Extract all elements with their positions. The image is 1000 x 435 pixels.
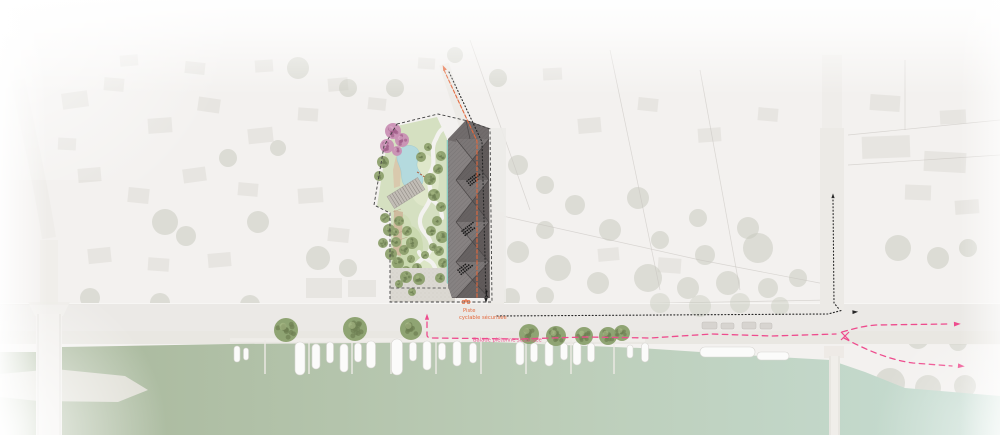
- context-tree: [959, 239, 977, 257]
- context-tree: [789, 269, 807, 287]
- shore-canopy: [730, 293, 750, 313]
- tree-texture: [435, 191, 438, 194]
- context-tree: [627, 187, 649, 209]
- tree-highlight: [393, 239, 396, 242]
- tree-highlight: [423, 253, 425, 255]
- context-building: [77, 167, 101, 183]
- tree-texture: [559, 338, 563, 342]
- context-tree: [247, 211, 269, 233]
- car: [721, 323, 734, 329]
- boat: [340, 344, 348, 372]
- tree-texture: [400, 260, 403, 263]
- boat: [573, 342, 581, 365]
- tree-texture: [530, 329, 534, 333]
- tree-highlight: [394, 148, 397, 151]
- context-tree: [536, 176, 554, 194]
- context-building: [637, 97, 658, 112]
- boat: [312, 344, 320, 369]
- tree-texture: [404, 232, 406, 234]
- tree-texture: [286, 335, 291, 340]
- context-building: [184, 61, 205, 75]
- context-tree: [219, 149, 237, 167]
- context-building: [905, 185, 932, 201]
- shore-canopy: [650, 293, 670, 313]
- context-building: [955, 199, 980, 215]
- tree-highlight: [618, 328, 623, 333]
- tree-texture: [430, 180, 433, 183]
- context-building: [940, 109, 967, 124]
- tree-texture: [399, 143, 402, 146]
- tree-highlight: [410, 290, 412, 292]
- car: [760, 323, 772, 329]
- tree-highlight: [409, 239, 413, 243]
- tree-texture: [409, 260, 411, 262]
- boat: [700, 347, 755, 357]
- tree-texture: [443, 261, 445, 263]
- context-building: [597, 247, 619, 262]
- tree-texture: [405, 248, 407, 250]
- tree-highlight: [386, 226, 390, 230]
- bridge-approach-road: [18, 80, 49, 238]
- project-site: [374, 114, 492, 302]
- context-tree: [743, 233, 773, 263]
- boat: [295, 342, 305, 375]
- context-building: [367, 97, 386, 111]
- context-tree: [927, 247, 949, 269]
- north-road: [820, 128, 844, 310]
- tree-highlight: [437, 275, 440, 278]
- context-tree: [677, 277, 699, 299]
- context-tree: [339, 259, 357, 277]
- tree-texture: [383, 148, 386, 151]
- tree-texture: [580, 338, 584, 342]
- context-building: [197, 97, 221, 114]
- tree-texture: [397, 150, 399, 152]
- context-tree: [152, 209, 178, 235]
- tree-highlight: [435, 166, 438, 169]
- boat: [244, 348, 249, 360]
- tree-highlight: [438, 153, 441, 156]
- context-building: [757, 107, 778, 122]
- tree-highlight: [579, 331, 584, 336]
- car: [742, 322, 756, 329]
- tree-highlight: [434, 218, 437, 221]
- tree-highlight: [524, 328, 530, 334]
- context-building: [658, 257, 682, 274]
- left-bridge-deck: [36, 314, 62, 435]
- tree-texture: [438, 170, 440, 172]
- context-building: [862, 135, 911, 159]
- boat: [470, 343, 477, 363]
- context-building: [543, 68, 563, 81]
- context-building: [247, 127, 273, 145]
- tree-highlight: [382, 215, 385, 218]
- boat: [392, 339, 403, 375]
- tree-texture: [438, 239, 441, 242]
- context-tree: [536, 221, 554, 239]
- tree-texture: [384, 243, 386, 245]
- context-tree: [758, 278, 778, 298]
- tree-highlight: [376, 173, 379, 176]
- tree-highlight: [603, 331, 608, 336]
- context-building: [58, 138, 77, 151]
- tree-texture: [616, 333, 619, 336]
- river-water: [0, 342, 1000, 435]
- tree-highlight: [279, 323, 286, 330]
- context-building: [298, 107, 319, 121]
- tree-highlight: [409, 257, 411, 259]
- context-tree: [507, 241, 529, 263]
- tree-texture: [411, 244, 414, 247]
- context-tree: [386, 79, 404, 97]
- context-building: [418, 57, 436, 69]
- boat: [234, 346, 240, 362]
- context-building: [61, 90, 89, 109]
- context-tree: [599, 219, 621, 241]
- tree-texture: [381, 245, 383, 247]
- context-building: [120, 54, 139, 67]
- context-building: [148, 257, 170, 271]
- tree-highlight: [403, 273, 407, 277]
- tree-texture: [350, 333, 355, 338]
- context-tree: [536, 287, 554, 305]
- arrow-icon: [958, 363, 965, 368]
- tree-texture: [623, 333, 626, 336]
- tree-highlight: [551, 330, 557, 336]
- context-tree: [885, 235, 911, 261]
- tree-highlight: [414, 265, 417, 268]
- boat: [410, 342, 417, 361]
- left-bridge-approach: [40, 240, 58, 304]
- tree-texture: [408, 228, 410, 230]
- context-tree: [270, 140, 286, 156]
- tree-highlight: [428, 228, 431, 231]
- tree-texture: [401, 219, 403, 221]
- context-tree: [565, 195, 585, 215]
- tree-texture: [422, 256, 424, 258]
- tree-highlight: [388, 250, 392, 254]
- shore-canopy: [771, 297, 789, 315]
- tree-texture: [290, 324, 295, 329]
- tree-highlight: [439, 233, 443, 237]
- tree-texture: [440, 278, 442, 280]
- tree-texture: [435, 170, 437, 172]
- site-east-strip: [490, 128, 506, 302]
- tree-texture: [412, 293, 414, 295]
- tree-texture: [382, 161, 385, 164]
- tree-highlight: [401, 247, 404, 250]
- context-building: [255, 59, 274, 72]
- tree-texture: [439, 248, 441, 250]
- tree-texture: [398, 222, 400, 224]
- context-tree: [447, 47, 463, 63]
- boat: [439, 343, 446, 360]
- tree-texture: [408, 276, 411, 279]
- tree-highlight: [416, 275, 420, 279]
- context-building: [103, 77, 124, 92]
- context-tree: [651, 231, 669, 249]
- boat: [757, 352, 789, 360]
- boat: [627, 345, 633, 358]
- boat: [355, 343, 362, 362]
- boat: [367, 341, 376, 368]
- tree-highlight: [395, 259, 399, 263]
- tree-highlight: [380, 240, 383, 243]
- context-tree: [508, 155, 528, 175]
- pedestrian-path-label: Balade piétonne sécurisée: [473, 337, 542, 344]
- context-tree: [545, 255, 571, 281]
- parcel-line: [848, 120, 1000, 135]
- tree-highlight: [431, 245, 433, 247]
- context-tree: [716, 271, 740, 295]
- tree-texture: [356, 323, 361, 328]
- tree-texture: [442, 265, 444, 267]
- tree-texture: [428, 182, 431, 185]
- tree-highlight: [431, 191, 435, 195]
- boat: [423, 341, 431, 370]
- tree-texture: [393, 233, 395, 235]
- north-road-far: [822, 55, 842, 130]
- context-tree: [306, 246, 330, 270]
- tree-highlight: [405, 322, 412, 329]
- tree-texture: [386, 216, 388, 218]
- context-tree: [339, 79, 357, 97]
- tree-highlight: [398, 136, 402, 140]
- tree-highlight: [418, 154, 421, 157]
- tree-texture: [434, 247, 436, 249]
- context-building: [87, 247, 111, 264]
- context-tree: [287, 57, 309, 79]
- boat: [327, 342, 334, 363]
- tree-highlight: [404, 228, 407, 231]
- car: [702, 322, 717, 329]
- site-plan: Piste cyclable sécurisée Balade piétonne…: [0, 0, 1000, 435]
- context-building: [924, 151, 967, 173]
- tree-highlight: [396, 218, 399, 221]
- tree-texture: [394, 130, 397, 133]
- context-building: [207, 252, 231, 268]
- tree-highlight: [397, 282, 399, 284]
- tree-texture: [391, 255, 394, 258]
- bike-path-label-line2: cyclable sécurisée: [459, 314, 507, 321]
- context-building: [577, 117, 601, 134]
- tree-highlight: [427, 175, 431, 179]
- right-footbridge-deck: [829, 356, 840, 435]
- context-tree: [489, 69, 507, 87]
- tree-texture: [585, 337, 589, 341]
- tree-texture: [415, 279, 418, 282]
- context-building: [127, 187, 149, 204]
- tree-highlight: [440, 260, 443, 263]
- context-building: [237, 182, 258, 197]
- context-building: [869, 94, 900, 112]
- tree-highlight: [426, 145, 428, 147]
- tree-texture: [413, 331, 418, 336]
- context-building: [306, 278, 342, 298]
- bike-path-label-line1: Piste: [463, 308, 475, 314]
- roof-hatch: [448, 120, 490, 298]
- tree-highlight: [393, 230, 395, 232]
- tree-highlight: [383, 142, 387, 146]
- tree-texture: [442, 157, 444, 159]
- tree-texture: [442, 205, 444, 207]
- boat: [531, 343, 538, 362]
- context-building: [148, 117, 173, 134]
- site-plan-svg: Piste cyclable sécurisée Balade piétonne…: [0, 0, 1000, 435]
- boat: [453, 341, 461, 366]
- context-building: [348, 280, 376, 297]
- tree-highlight: [348, 322, 355, 329]
- context-building: [182, 166, 207, 183]
- tree-texture: [587, 331, 591, 335]
- roads: [0, 55, 1000, 344]
- shore-canopy: [689, 295, 711, 317]
- boat: [516, 342, 524, 365]
- context-building: [698, 127, 722, 143]
- tree-texture: [394, 242, 396, 244]
- pedestrian-head: [485, 290, 487, 292]
- context-building: [327, 227, 349, 243]
- tree-texture: [391, 251, 394, 254]
- tree-highlight: [389, 126, 394, 131]
- tree-texture: [400, 140, 403, 143]
- context-building: [298, 187, 324, 204]
- boat: [588, 343, 595, 362]
- tree-texture: [289, 330, 294, 335]
- tree-texture: [404, 250, 406, 252]
- left-bridge-flare: [28, 302, 70, 316]
- context-tree: [176, 226, 196, 246]
- boat: [642, 343, 649, 362]
- context-tree: [689, 209, 707, 227]
- tree-texture: [404, 139, 407, 142]
- boat: [561, 343, 568, 360]
- tree-highlight: [438, 204, 441, 207]
- tree-texture: [431, 233, 433, 235]
- context-tree: [587, 272, 609, 294]
